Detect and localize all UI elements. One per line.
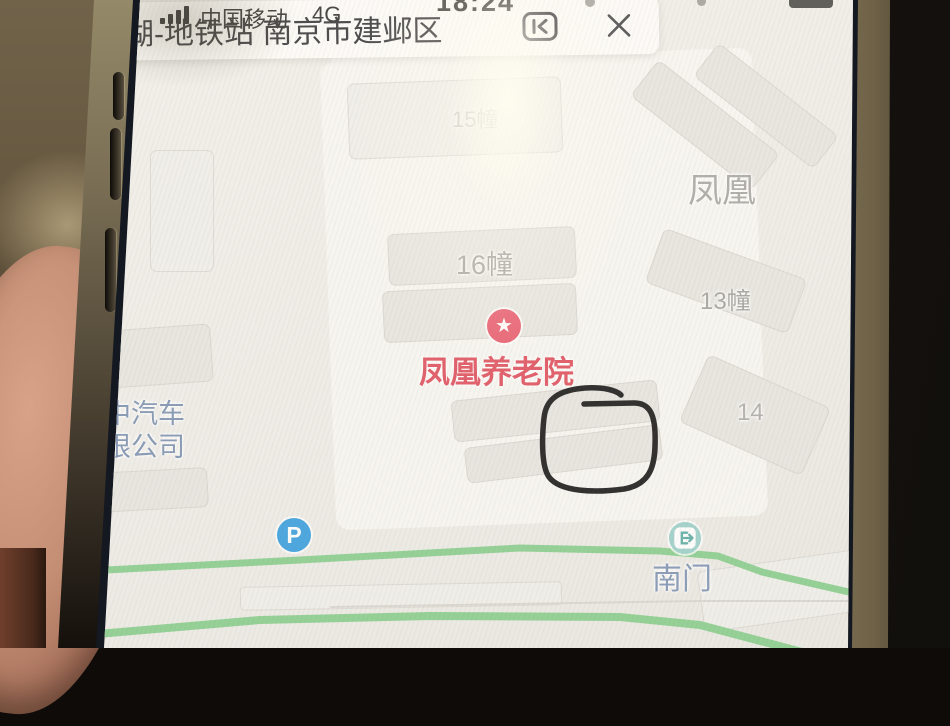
- table-surface: [0, 548, 46, 648]
- volume-up-button: [110, 128, 121, 200]
- phone-screen: 北门 11幢 15幢 凤凰 16幢 13幢 14 ★ 凤凰养老院 中汽车 限公司…: [0, 0, 950, 648]
- volume-down-button: [105, 228, 116, 312]
- mute-switch: [113, 72, 124, 120]
- hand-drawn-circle-annotation: [0, 0, 950, 648]
